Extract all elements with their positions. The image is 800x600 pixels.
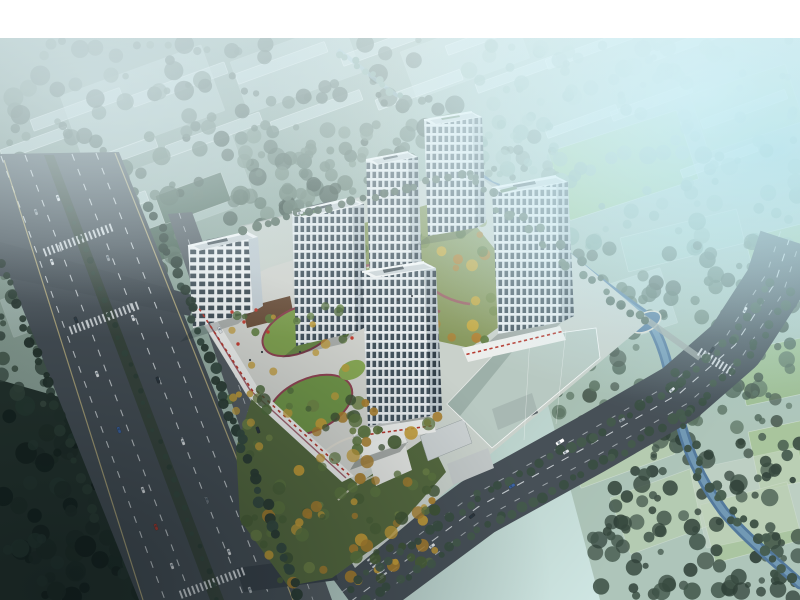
rendering-frame bbox=[0, 0, 800, 600]
vignette bbox=[0, 38, 800, 600]
atmosphere bbox=[0, 38, 800, 600]
top-margin bbox=[0, 0, 800, 38]
aerial-rendering bbox=[0, 0, 800, 600]
